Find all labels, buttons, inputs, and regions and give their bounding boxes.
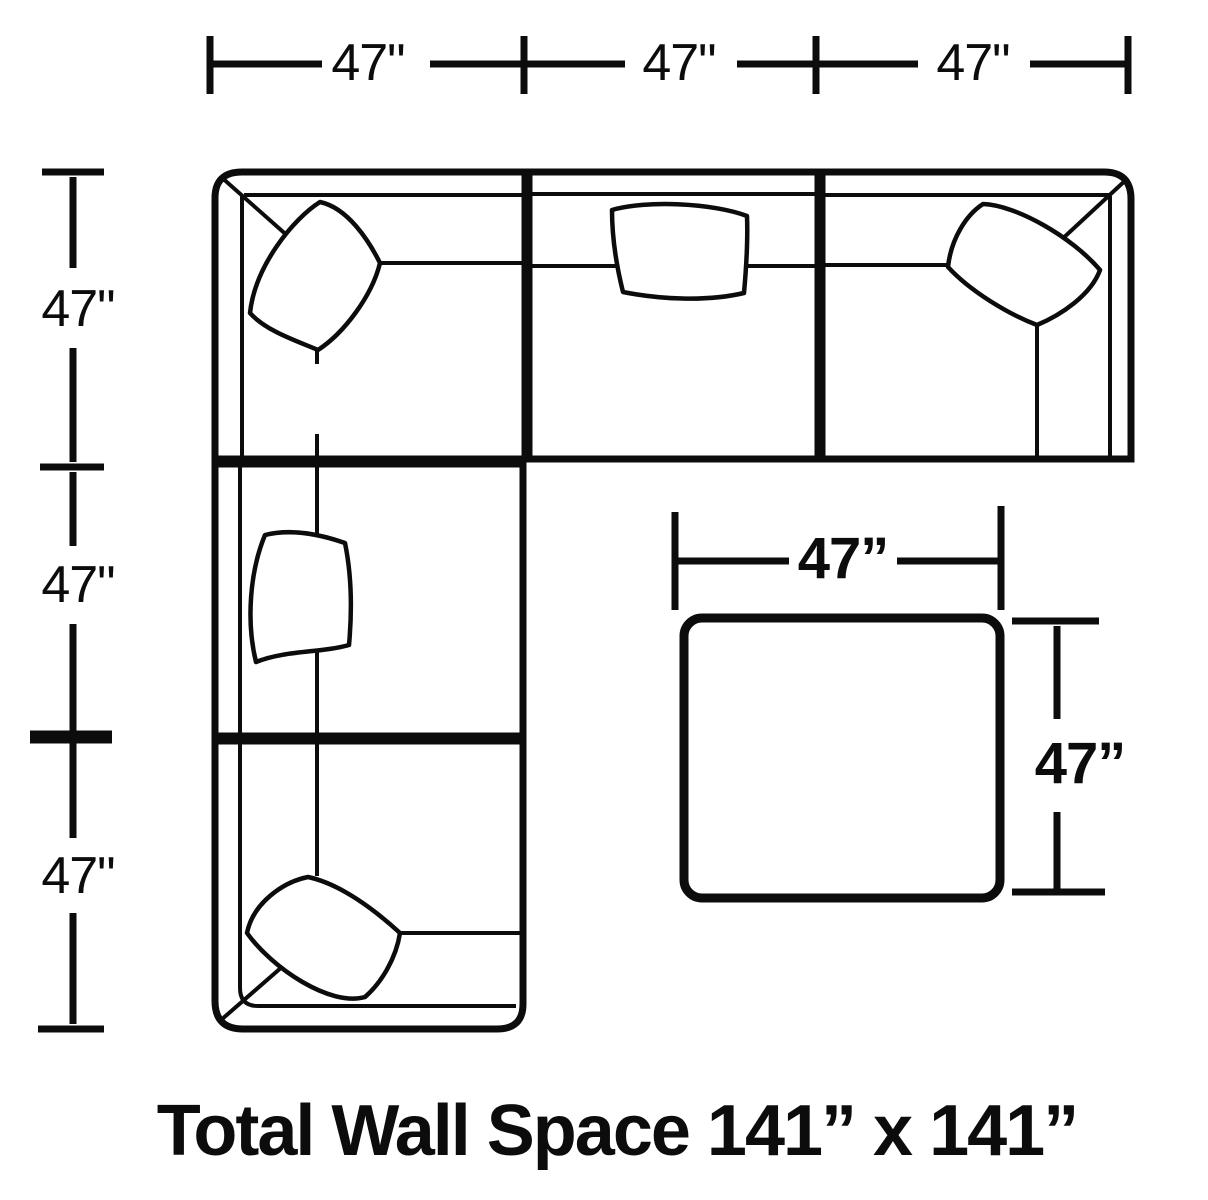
- pillow: [612, 204, 747, 299]
- ottoman-outline: [684, 618, 1000, 898]
- pillow: [250, 202, 380, 350]
- section-top-middle: [529, 172, 818, 459]
- sectional-floorplan: 47" 47" 47" 47" 47" 47" 47” 47” Total Wa…: [0, 0, 1208, 1200]
- pillow: [948, 204, 1100, 325]
- top-dim-label-2: 47": [642, 37, 715, 89]
- top-dim-label-1: 47": [331, 37, 404, 89]
- total-wall-space-title: Total Wall Space 141” x 141”: [157, 1095, 1077, 1167]
- ottoman-height-label: 47”: [1035, 735, 1126, 793]
- section-top-right-corner: [822, 172, 1131, 459]
- left-dim-label-1: 47": [41, 283, 114, 335]
- sectional-diagram: [0, 0, 1208, 1200]
- section-top-left-corner: [215, 172, 525, 459]
- left-dim-label-2: 47": [41, 559, 114, 611]
- top-dim-label-3: 47": [936, 37, 1009, 89]
- pillow: [250, 532, 350, 662]
- ottoman: [675, 506, 1105, 898]
- ottoman-width-label: 47”: [798, 530, 889, 588]
- left-dim-label-3: 47": [41, 850, 114, 902]
- section-middle-left: [215, 464, 523, 736]
- pillow: [247, 877, 400, 999]
- section-bottom-left-corner: [215, 741, 523, 1029]
